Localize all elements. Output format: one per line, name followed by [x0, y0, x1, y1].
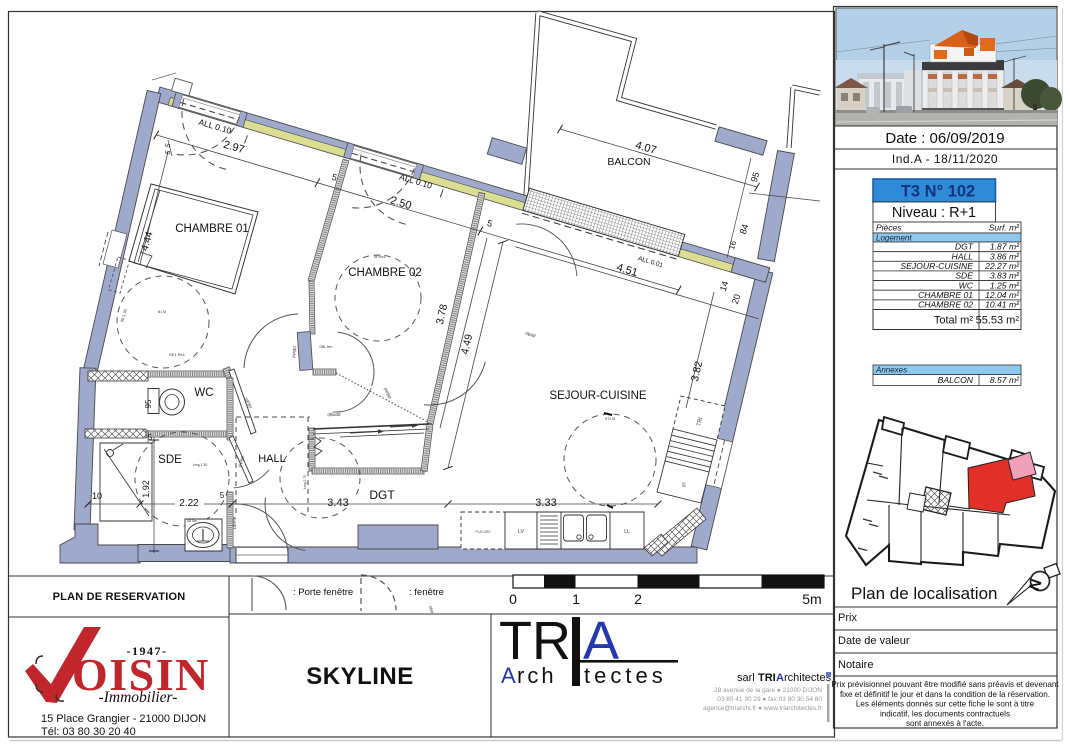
svg-text:10.41 m²: 10.41 m²	[985, 300, 1020, 310]
svg-text:DGT: DGT	[955, 242, 974, 252]
svg-text:5: 5	[148, 433, 153, 442]
svg-text:3.33: 3.33	[535, 497, 556, 509]
svg-text:1.25 m²: 1.25 m²	[990, 280, 1020, 290]
svg-text:5m: 5m	[802, 591, 821, 607]
svg-text:Notaire: Notaire	[838, 659, 873, 671]
svg-text:HALL: HALL	[952, 251, 974, 261]
svg-text:55.53 m²: 55.53 m²	[976, 315, 1020, 327]
svg-text:95: 95	[144, 399, 153, 408]
svg-text:Niveau : R+1: Niveau : R+1	[892, 205, 976, 221]
svg-text:Prix: Prix	[838, 612, 857, 624]
svg-text:1: 1	[572, 591, 580, 607]
svg-text:SDE: SDE	[955, 271, 973, 281]
svg-text:TR: TR	[499, 611, 571, 671]
svg-text:3.86 m²: 3.86 m²	[990, 251, 1020, 261]
svg-text:indicatif, les documents contr: indicatif, les documents contractuels	[880, 709, 1010, 718]
svg-text:0: 0	[509, 591, 517, 607]
svg-text:WC: WC	[194, 387, 213, 399]
svg-text:SEJOUR-CUISINE: SEJOUR-CUISINE	[900, 261, 973, 271]
svg-text:2.22: 2.22	[179, 498, 199, 509]
svg-text:3.83 m²: 3.83 m²	[990, 271, 1020, 281]
svg-text:03 80 41 30 29 ● fax 03 80 3: 03 80 41 30 29 ● fax 03 80 30 54 80	[717, 696, 822, 703]
svg-text:15 Place Grangier - 21000 DIJO: 15 Place Grangier - 21000 DIJON	[41, 713, 206, 725]
svg-text:Plan de localisation: Plan de localisation	[851, 584, 997, 603]
svg-text:2: 2	[634, 591, 642, 607]
svg-text:Annexes: Annexes	[875, 366, 907, 375]
svg-text:WC: WC	[959, 280, 974, 290]
svg-text:DGT: DGT	[369, 488, 395, 502]
svg-text:sont annexés à l'acte.: sont annexés à l'acte.	[906, 719, 984, 728]
svg-text:rchitectes: rchitectes	[784, 672, 832, 684]
svg-text:BALCON: BALCON	[938, 375, 974, 385]
svg-text:A: A	[501, 663, 516, 688]
svg-text:agence@triarchi.fr ● www.tri: agence@triarchi.fr ● www.triarchitectes.…	[703, 705, 823, 712]
svg-text:sarl: sarl	[737, 672, 755, 684]
svg-text:5: 5	[220, 491, 225, 500]
svg-text:LL: LL	[624, 529, 630, 535]
svg-text:A: A	[776, 672, 784, 684]
svg-text:Lmg 2.70: Lmg 2.70	[303, 475, 307, 490]
svg-text:Logement: Logement	[876, 233, 912, 242]
svg-text:A8 5m: A8 5m	[187, 519, 197, 523]
svg-text:CHAMBRE 01: CHAMBRE 01	[918, 290, 973, 300]
svg-text:Total m²: Total m²	[934, 315, 973, 327]
svg-text:PLACARD: PLACARD	[475, 530, 491, 534]
svg-text:: fenêtre: : fenêtre	[409, 587, 444, 598]
svg-text:CHAMBRE 01: CHAMBRE 01	[175, 223, 249, 235]
svg-text:28 avenue de la gare ● 21000: 28 avenue de la gare ● 21000 DIJON	[714, 687, 822, 694]
svg-text:Ind.A - 18/11/2020: Ind.A - 18/11/2020	[892, 152, 998, 166]
svg-text:Lmg 1.30: Lmg 1.30	[193, 463, 208, 467]
svg-text:B1 M: B1 M	[158, 310, 166, 314]
svg-text:Prix prévisionnel pouvant être: Prix prévisionnel pouvant être modifié s…	[831, 680, 1059, 689]
svg-text:CHAMBRE 02: CHAMBRE 02	[348, 267, 422, 279]
svg-text:1.92: 1.92	[141, 480, 151, 498]
svg-text:Date de valeur: Date de valeur	[838, 635, 910, 647]
svg-text:: Porte fenêtre: : Porte fenêtre	[293, 587, 353, 598]
svg-text:10: 10	[92, 491, 102, 501]
svg-text:Date : 06/09/2019: Date : 06/09/2019	[885, 130, 1004, 147]
svg-text:8.57 m²: 8.57 m²	[990, 375, 1020, 385]
svg-text:DbPfe: DbPfe	[232, 516, 237, 529]
svg-text:SDE: SDE	[158, 454, 182, 466]
svg-text:BALCON: BALCON	[607, 156, 650, 168]
svg-text:3.43: 3.43	[327, 497, 348, 509]
svg-text:CHAMBRE 02: CHAMBRE 02	[918, 300, 973, 310]
svg-text:Les éléments donnés sur cette: Les éléments donnés sur cette fiche le s…	[856, 700, 1035, 709]
svg-text:PLAN DE RESERVATION: PLAN DE RESERVATION	[53, 591, 186, 603]
svg-text:SEJOUR-CUISINE: SEJOUR-CUISINE	[549, 390, 646, 402]
svg-text:0Budd: 0Budd	[327, 412, 341, 417]
svg-text:LV: LV	[518, 529, 524, 535]
svg-text:0BL fen: 0BL fen	[320, 345, 333, 349]
svg-text:SE1 Re1: SE1 Re1	[169, 352, 186, 357]
svg-text:PPB0: PPB0	[292, 346, 298, 358]
svg-text:SKYLINE: SKYLINE	[306, 663, 414, 690]
svg-text:TRI: TRI	[758, 672, 776, 684]
svg-text:M Re1: M Re1	[374, 254, 387, 259]
svg-text:Surf. m²: Surf. m²	[989, 223, 1020, 233]
svg-text:22.27 m²: 22.27 m²	[984, 261, 1020, 271]
svg-text:tectes: tectes	[584, 663, 667, 688]
svg-text:12.04 m²: 12.04 m²	[985, 290, 1020, 300]
svg-text:T3 N° 102: T3 N° 102	[901, 183, 975, 201]
svg-text:fixe et définitif le jour et d: fixe et définitif le jour et dans la con…	[840, 690, 1050, 699]
svg-text:-Immobilier-: -Immobilier-	[99, 689, 178, 706]
svg-text:ST1 M: ST1 M	[605, 417, 615, 421]
svg-text:1.87 m²: 1.87 m²	[990, 242, 1020, 252]
svg-text:HALL: HALL	[258, 453, 286, 465]
svg-text:rch: rch	[517, 663, 557, 688]
svg-text:Tél: 03 80 30 20 40: Tél: 03 80 30 20 40	[41, 726, 136, 738]
svg-text:Pièces: Pièces	[876, 223, 902, 233]
